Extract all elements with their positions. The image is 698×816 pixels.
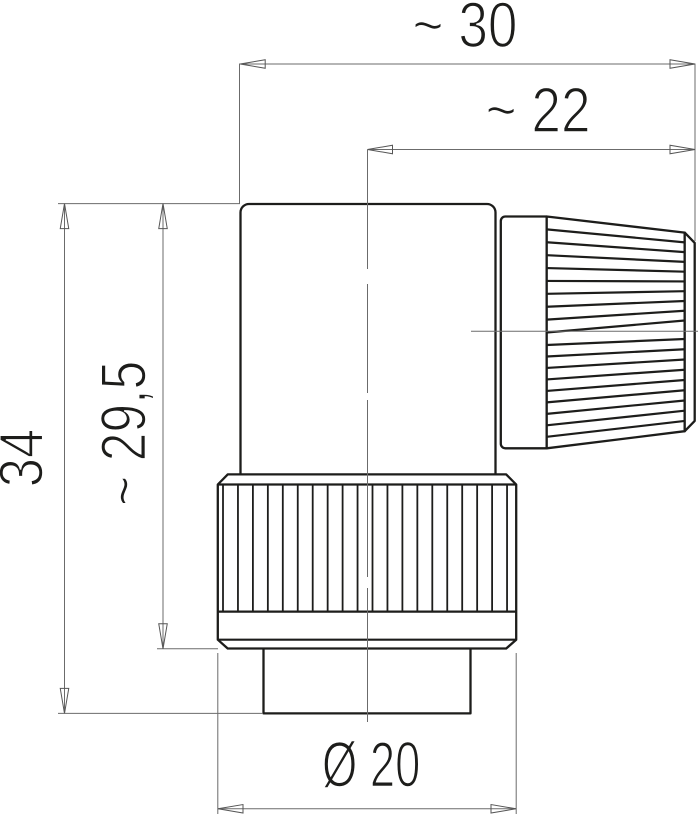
svg-text:~ 29,5: ~ 29,5 [88, 361, 160, 506]
svg-text:Ø 20: Ø 20 [322, 729, 420, 801]
svg-text:~ 30: ~ 30 [413, 0, 518, 61]
svg-text:~ 22: ~ 22 [486, 74, 591, 146]
svg-text:34: 34 [0, 429, 57, 488]
